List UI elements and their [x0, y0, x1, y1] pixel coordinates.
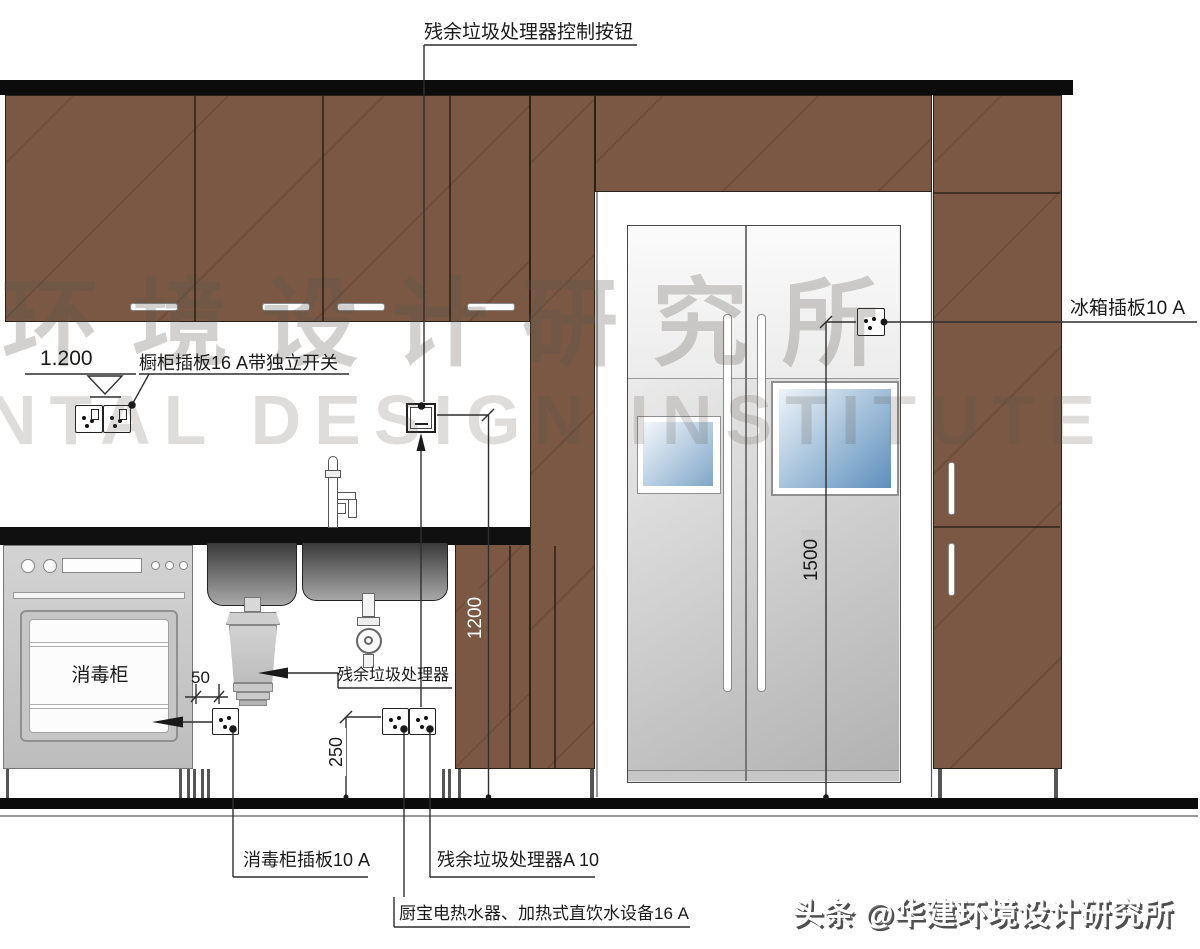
shelf-line [30, 708, 168, 709]
cabinet-handle [948, 543, 955, 596]
drain-nut [357, 617, 380, 626]
cabinet-leg [442, 769, 445, 798]
cabinet-leg [201, 769, 204, 798]
upper-cabinets [5, 95, 530, 322]
cabinet-handle [262, 303, 310, 311]
faucet-tab [337, 503, 346, 514]
cabinet-leg [590, 769, 594, 798]
fridge-base [628, 770, 899, 781]
elevation-triangle-icon [88, 376, 122, 394]
fridge-handle-left [723, 314, 732, 692]
dim-50: 50 [191, 668, 210, 688]
right-tall-cabinet [933, 95, 1062, 769]
fridge-socket-label: 冰箱插板10 A [1070, 293, 1185, 320]
sterilizer-button [165, 561, 174, 570]
branding-watermark: 头条 @华建环境设计研究所 [793, 889, 1174, 933]
disposal-socket [382, 708, 409, 735]
drain-trap-center [364, 636, 373, 645]
cabinet-leg [448, 769, 451, 798]
elevation-value: 1.200 [40, 347, 93, 371]
kitchen-elevation-drawing: 消毒柜 [0, 0, 1200, 949]
fridge-left-window-frame [637, 416, 721, 494]
cabinet-leg [6, 769, 9, 798]
water-heater-socket [409, 708, 436, 735]
disposal-ring [233, 683, 273, 692]
cabinet-leg [207, 769, 210, 798]
sterilizer-socket [212, 708, 239, 735]
cabinet-leg [1054, 769, 1058, 798]
tall-cabinet-strip [530, 95, 595, 769]
sterilizer-socket-label: 消毒柜插板10 A [243, 846, 370, 872]
fridge-socket [857, 308, 885, 336]
disposal-base [239, 700, 267, 706]
sink-basin-right [302, 543, 448, 601]
shelf-line [30, 646, 168, 647]
counter-socket-right [103, 405, 131, 433]
sterilizer-knob [21, 559, 35, 573]
cabinet-leg [193, 769, 196, 798]
over-fridge-cabinet [595, 95, 932, 192]
ceiling-soffit [0, 80, 1073, 95]
disposal-body [229, 625, 277, 683]
counter-socket-label: 橱柜插板16 A带独立开关 [139, 349, 338, 375]
fridge-right-window [779, 389, 891, 488]
fridge-right-window-frame [771, 381, 899, 496]
disposal-ring [236, 692, 270, 700]
cabinet-leg [187, 769, 190, 798]
cabinet-handle [948, 462, 955, 515]
disposal-socket-label: 残余垃圾处理器A 10 [437, 846, 599, 872]
sterilizer-button [179, 561, 188, 570]
disposal-control-button [406, 403, 436, 433]
sterilizer-button [151, 561, 160, 570]
sterilizer-door: 消毒柜 [20, 610, 178, 742]
cabinet-leg [179, 769, 182, 798]
drain-pipe [362, 593, 375, 617]
dim-1200: 1200 [465, 588, 487, 648]
sterilizer-door-window: 消毒柜 [29, 619, 169, 733]
dim-1500: 1500 [801, 530, 823, 590]
dim-250: 250 [326, 728, 346, 776]
water-heater-socket-label: 厨宝电热水器、加热式直饮水设备16 A [399, 899, 689, 924]
disposal-flange [244, 597, 261, 612]
shelf-line [30, 704, 168, 705]
floor-subline [0, 815, 1198, 817]
fridge-handle-right [757, 314, 766, 692]
faucet-nozzle [348, 499, 357, 518]
sterilizer-handle-slot [13, 592, 185, 599]
disposal-pointer-label: 残余垃圾处理器 [337, 661, 449, 685]
disposal-control-label: 残余垃圾处理器控制按钮 [424, 17, 633, 44]
cabinet-leg [458, 769, 461, 798]
fridge-left-window [643, 422, 713, 486]
sterilizer-knob [43, 559, 57, 573]
sterilizer-display [62, 558, 142, 573]
sterilizer-cabinet: 消毒柜 [3, 545, 193, 769]
cabinet-handle [337, 303, 385, 311]
sterilizer-label: 消毒柜 [30, 660, 170, 687]
counter-socket-left [75, 405, 103, 433]
floor-line [0, 798, 1198, 809]
cabinet-leg [938, 769, 942, 798]
faucet-collar [325, 470, 341, 478]
fridge-door-split [745, 226, 747, 781]
cabinet-handle [467, 303, 515, 311]
cabinet-handle [130, 303, 178, 311]
tall-cabinet-base [455, 545, 530, 769]
shelf-line [30, 642, 168, 643]
disposal-cap [226, 612, 280, 625]
